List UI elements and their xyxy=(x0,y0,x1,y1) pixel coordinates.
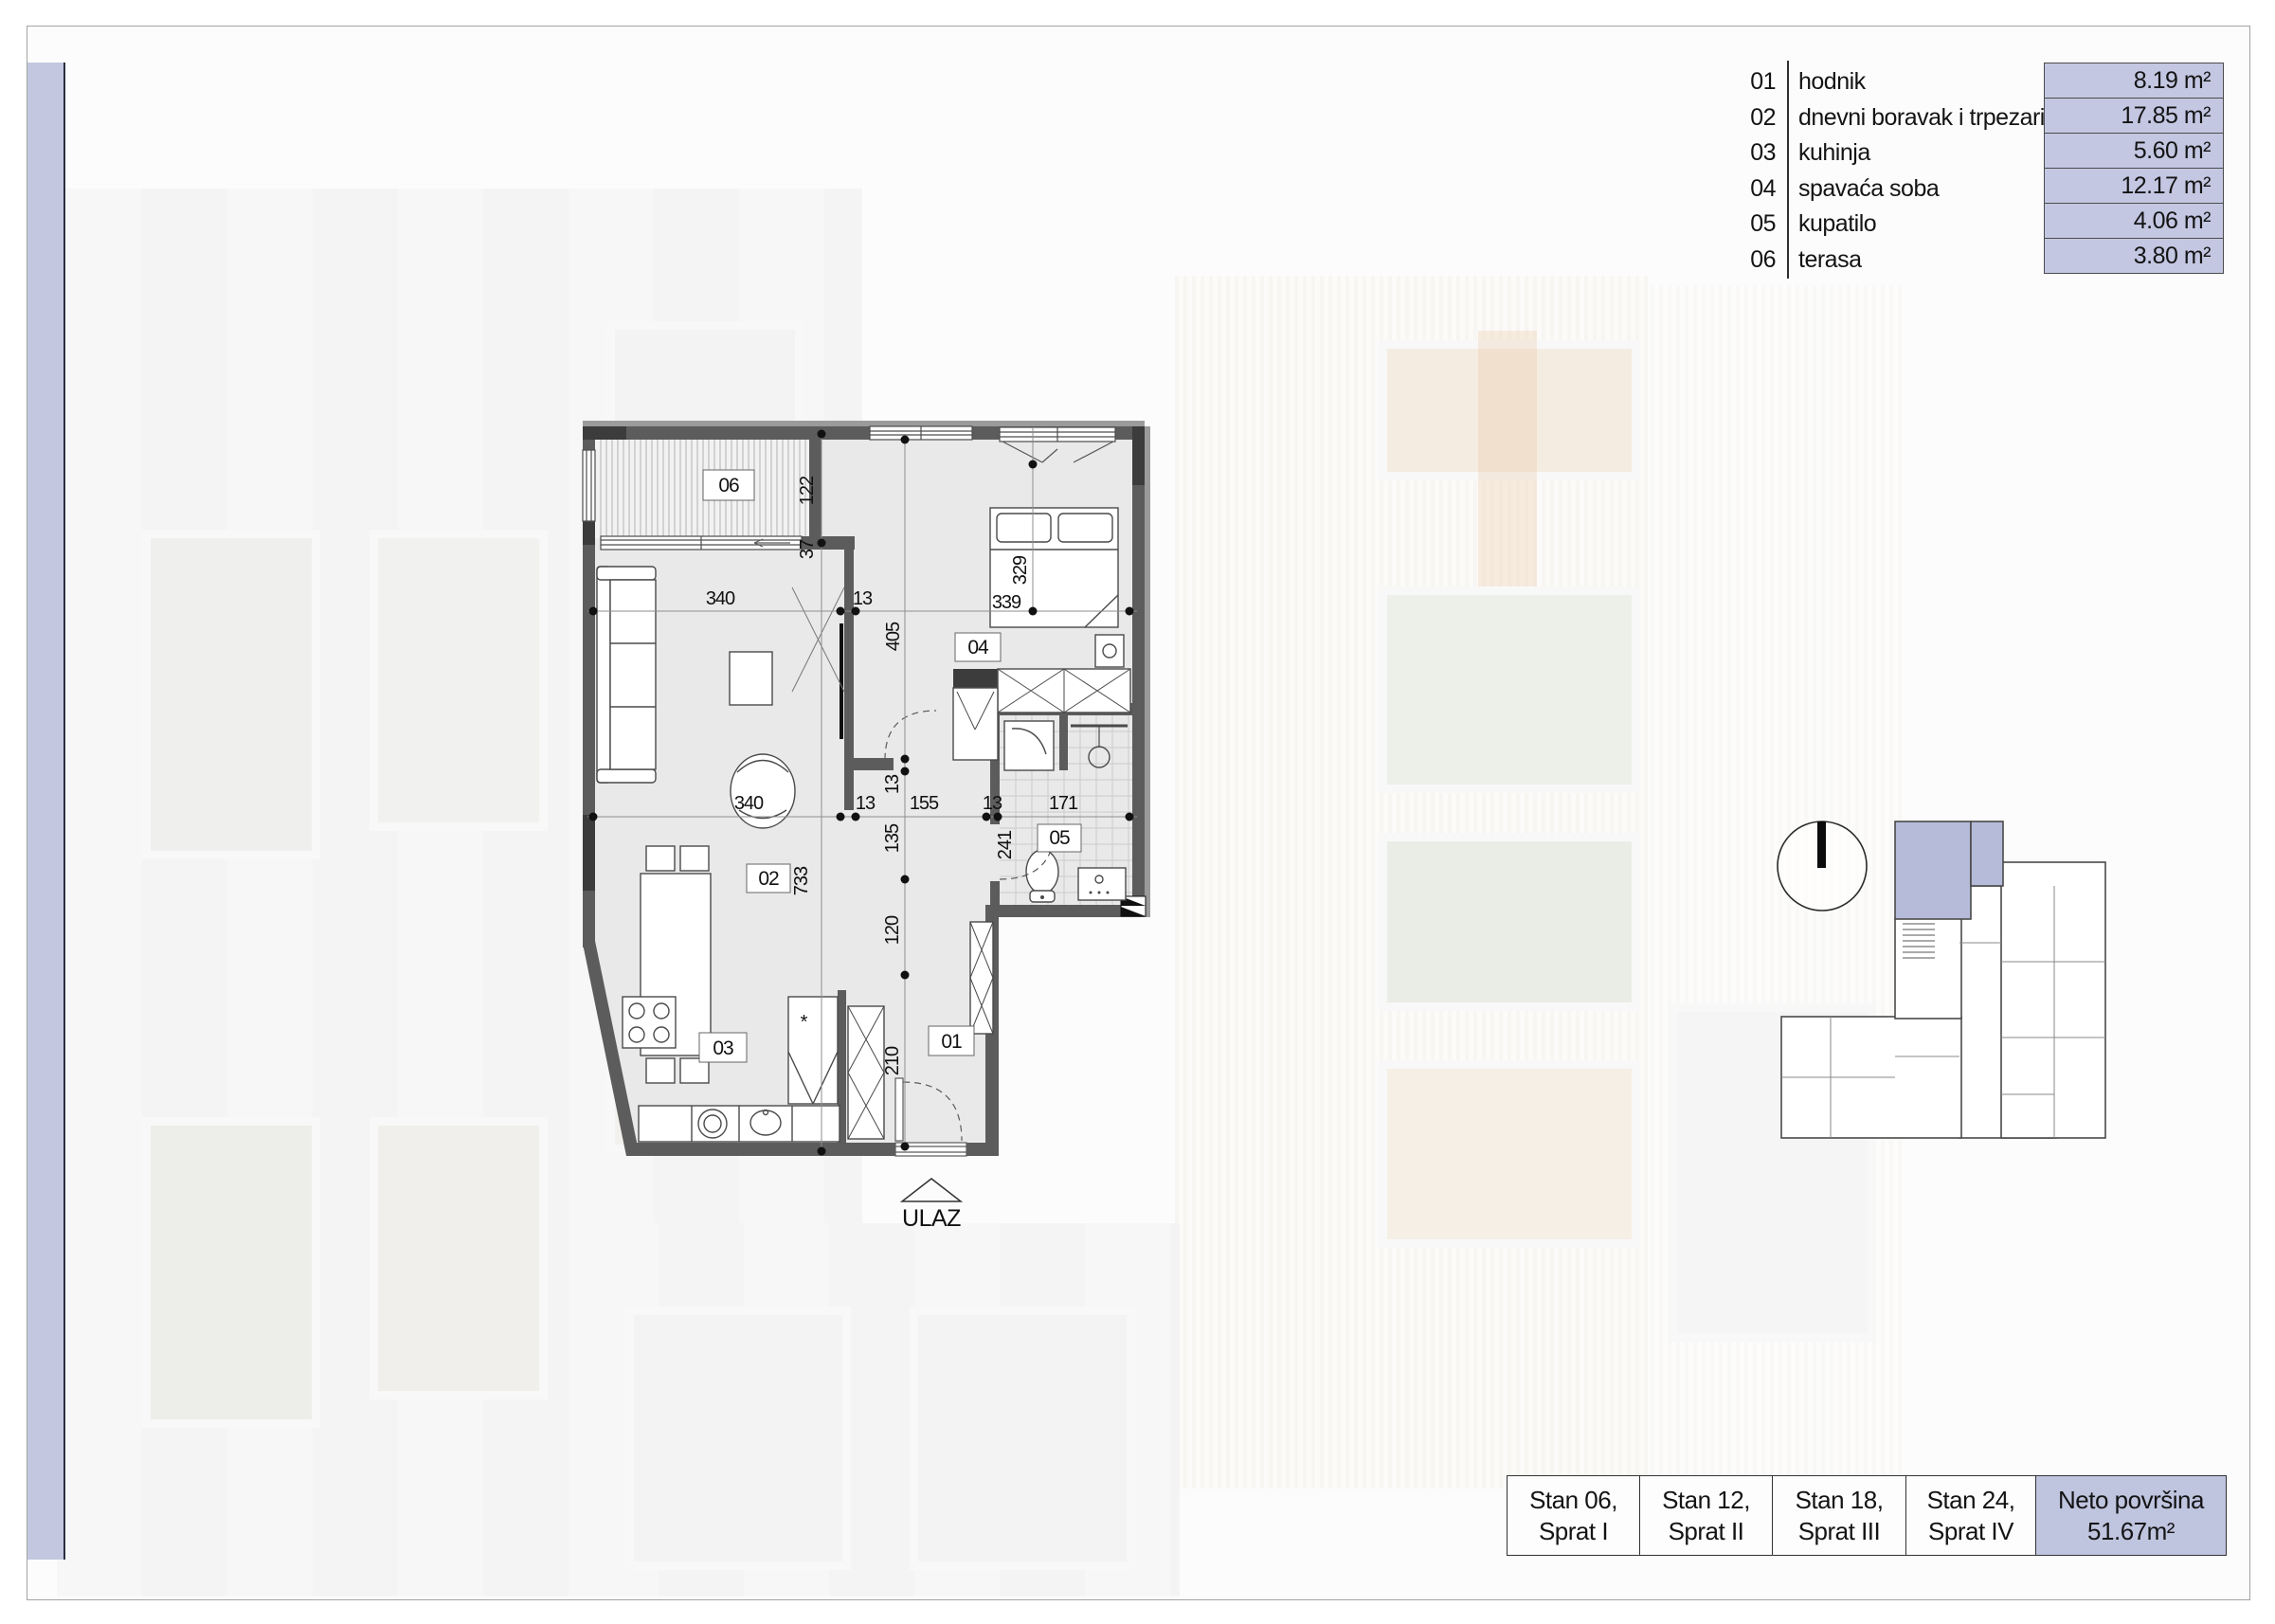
legend-row-num: 02 xyxy=(1732,100,1776,136)
dimension-label: 13 xyxy=(983,793,1002,814)
unit-line: Sprat IV xyxy=(1928,1516,2013,1547)
dimension-label: 13 xyxy=(856,793,876,814)
unit-cell: Stan 06, Sprat I xyxy=(1507,1475,1640,1556)
unit-line: Stan 06, xyxy=(1529,1485,1617,1516)
room-tag-06: 06 xyxy=(703,470,754,500)
dimension-label: 340 xyxy=(734,793,764,814)
net-area-cell: Neto površina 51.67m² xyxy=(2036,1475,2227,1556)
unit-cell: Stan 12, Sprat II xyxy=(1640,1475,1773,1556)
legend-area-value: 5.60 m² xyxy=(2045,134,2223,169)
dimension-label: 339 xyxy=(992,592,1021,613)
legend-row-num: 05 xyxy=(1732,207,1776,243)
dimension-label: 171 xyxy=(1049,793,1078,814)
accent-bar xyxy=(27,63,65,1560)
legend-row-label: spavaća soba xyxy=(1798,171,2045,208)
room-tag-02: 02 xyxy=(747,864,790,893)
net-area-label: Neto površina xyxy=(2058,1485,2204,1516)
unit-line: Sprat I xyxy=(1539,1516,1608,1547)
legend-divider xyxy=(1787,61,1789,279)
net-area-value: 51.67m² xyxy=(2087,1516,2175,1547)
legend-row-num: 04 xyxy=(1732,171,1776,208)
dimension-label: 155 xyxy=(910,793,939,814)
unit-line: Stan 18, xyxy=(1796,1485,1884,1516)
legend-numbers: 01 02 03 04 05 06 xyxy=(1732,64,1776,278)
svg-text:04: 04 xyxy=(967,637,989,659)
room-tag-04: 04 xyxy=(955,633,1001,661)
key-plan xyxy=(1774,810,2134,1161)
dimension-label: 241 xyxy=(995,830,1016,859)
legend-area-value: 17.85 m² xyxy=(2045,99,2223,134)
svg-text:06: 06 xyxy=(718,475,739,496)
kitchen-tall-unit xyxy=(788,997,838,1104)
unit-line: Stan 24, xyxy=(1927,1485,2015,1516)
hall-cabinet xyxy=(970,922,993,1034)
legend-row-num: 01 xyxy=(1732,64,1776,100)
coffee-table xyxy=(730,652,772,705)
stove xyxy=(623,997,676,1048)
bathroom-vanity xyxy=(1078,868,1126,900)
bedroom-wardrobe xyxy=(998,669,1130,713)
legend-row-label: kuhinja xyxy=(1798,135,2045,171)
legend-row-label: hodnik xyxy=(1798,64,2045,100)
svg-text:01: 01 xyxy=(941,1031,962,1053)
dimension-label: 135 xyxy=(882,823,903,853)
dimension-label: 13 xyxy=(882,774,903,794)
terrace-side-window xyxy=(583,450,595,521)
entry-cabinet xyxy=(953,688,998,760)
unit-line: Sprat III xyxy=(1798,1516,1881,1547)
room-tag-01: 01 xyxy=(929,1026,974,1056)
dimension-label: 37 xyxy=(797,539,818,559)
unit-line: Stan 12, xyxy=(1662,1485,1750,1516)
room-tag-03: 03 xyxy=(699,1033,747,1062)
legend-labels: hodnik dnevni boravak i trpezarija kuhin… xyxy=(1798,64,2045,278)
entrance-marker: ULAZ xyxy=(902,1179,961,1232)
legend-row-num: 03 xyxy=(1732,135,1776,171)
unit-cell: Stan 24, Sprat IV xyxy=(1906,1475,2036,1556)
unit-cell: Stan 18, Sprat III xyxy=(1773,1475,1906,1556)
legend-row-label: dnevni boravak i trpezarija xyxy=(1798,100,2045,136)
sofa xyxy=(597,567,656,783)
legend-row-label: terasa xyxy=(1798,243,2045,279)
dimension-label: 122 xyxy=(797,476,818,505)
hall-closet xyxy=(848,1006,884,1139)
nightstand xyxy=(1095,635,1124,667)
washing-machine xyxy=(1004,721,1054,770)
svg-text:02: 02 xyxy=(758,868,779,890)
dimension-label: 733 xyxy=(791,866,812,895)
room-tag-05: 05 xyxy=(1038,824,1081,852)
legend-area-value: 12.17 m² xyxy=(2045,169,2223,204)
svg-text:03: 03 xyxy=(713,1038,733,1059)
kitchen-counter xyxy=(639,1106,840,1142)
legend-row-label: kupatilo xyxy=(1798,207,2045,243)
unit-line: Sprat II xyxy=(1669,1516,1744,1547)
toilet xyxy=(1026,850,1058,902)
legend-row-num: 06 xyxy=(1732,243,1776,279)
unit-floor-table: Stan 06, Sprat I Stan 12, Sprat II Stan … xyxy=(1507,1475,2227,1556)
floor-plan: 340 13 339 329 122 37 405 13 340 13 155 … xyxy=(569,407,1213,1260)
dimension-label: 210 xyxy=(882,1046,903,1075)
dimension-label: 329 xyxy=(1010,555,1031,585)
legend-area-value: 4.06 m² xyxy=(2045,204,2223,239)
dimension-label: 13 xyxy=(853,588,873,609)
dimension-label: 405 xyxy=(883,622,904,651)
legend-area-value: 8.19 m² xyxy=(2045,63,2223,99)
svg-text:05: 05 xyxy=(1049,827,1070,849)
hall-top-window xyxy=(870,426,972,440)
legend-area-boxes: 8.19 m² 17.85 m² 5.60 m² 12.17 m² 4.06 m… xyxy=(2044,63,2224,274)
dimension-label: 340 xyxy=(706,588,735,609)
kitchen-star: * xyxy=(801,1012,808,1033)
compass-icon xyxy=(1778,821,1867,911)
entrance-label: ULAZ xyxy=(902,1205,961,1232)
legend-area-value: 3.80 m² xyxy=(2045,239,2223,273)
dimension-label: 120 xyxy=(882,915,903,945)
